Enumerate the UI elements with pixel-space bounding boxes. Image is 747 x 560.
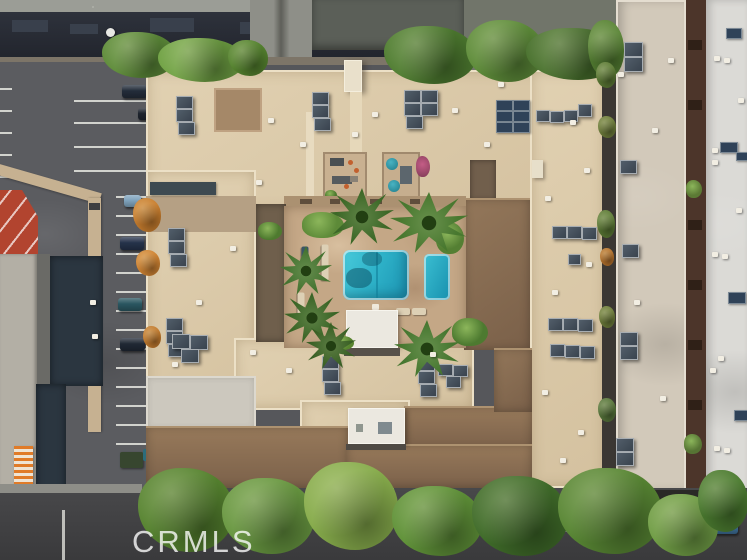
roof-vent: [542, 390, 548, 395]
roof-vent: [256, 180, 262, 185]
hvac-unit: [168, 241, 185, 254]
roof-vent: [498, 82, 504, 87]
skylight-panel: [734, 410, 747, 421]
lounge-chair: [412, 308, 426, 315]
watermark: CRMLS: [132, 524, 256, 560]
hvac-unit: [421, 90, 438, 103]
window-slit: [300, 199, 312, 204]
pool-palm-shadow: [362, 252, 382, 266]
hvac-unit: [324, 382, 341, 395]
balcony: [688, 400, 702, 410]
hvac-unit: [565, 345, 580, 358]
hvac-unit: [578, 319, 593, 332]
rooftop-unit: [70, 24, 98, 34]
roof-vent: [570, 120, 576, 125]
parking-stall-tick: [0, 132, 12, 134]
parking-stall-line: [116, 291, 148, 293]
hvac-unit: [176, 96, 193, 109]
brown-roof-deck: [214, 88, 262, 132]
roof-vent: [712, 148, 718, 153]
roof-vent: [660, 396, 666, 401]
skylight-panel: [728, 292, 746, 304]
orange-cushion: [348, 160, 353, 165]
hvac-unit: [176, 109, 193, 122]
parking-stall-line: [116, 424, 148, 426]
hvac-unit: [168, 228, 185, 241]
parking-stall-tick: [0, 110, 12, 112]
roof-vent: [230, 246, 236, 251]
hvac-unit: [446, 376, 461, 388]
shrub: [452, 318, 488, 346]
shrub: [258, 222, 282, 240]
parking-stall-line: [116, 234, 148, 236]
hvac-unit: [616, 452, 634, 466]
parking-stall-line: [74, 146, 146, 148]
parking-stall-line: [74, 100, 146, 102]
skylight-panel: [736, 152, 747, 161]
hvac-unit: [172, 334, 190, 349]
skylight-panel: [726, 28, 742, 39]
hvac-unit: [552, 226, 567, 239]
tan-transition-band: [146, 196, 256, 232]
hvac-unit: [322, 369, 339, 382]
hvac-unit: [406, 116, 423, 129]
hvac-unit: [536, 110, 550, 122]
autumn-tree: [143, 326, 161, 348]
roof-vent: [736, 208, 742, 213]
hvac-unit: [568, 254, 581, 265]
hvac-unit: [624, 42, 643, 57]
roof-vent: [172, 362, 178, 367]
parking-stall-line: [74, 122, 146, 124]
rooftop-unit: [378, 422, 392, 434]
hvac-unit: [624, 57, 643, 72]
balcony: [688, 280, 702, 290]
main-building-east-wing: [530, 70, 606, 488]
lounge-chair: [396, 308, 410, 315]
roof-vent: [652, 128, 658, 133]
roof-vent: [578, 430, 584, 435]
hvac-unit: [563, 318, 578, 331]
hvac-unit: [548, 318, 563, 331]
gray-roof-slab: [146, 376, 256, 430]
spa: [424, 254, 450, 300]
solar-panel: [513, 111, 530, 122]
bougainvillea: [416, 156, 430, 177]
roof-vent: [430, 352, 436, 357]
tree: [598, 116, 616, 138]
patio-table: [350, 176, 358, 182]
roof-vent: [714, 56, 720, 61]
car: [122, 85, 147, 98]
hvac-unit: [620, 332, 638, 346]
solar-panel: [496, 111, 513, 122]
roof-vent: [712, 160, 718, 165]
parking-stall-line: [116, 443, 148, 445]
hvac-unit: [314, 118, 331, 131]
parking-stall-tick: [0, 88, 12, 90]
roof-chimney: [344, 60, 362, 92]
roof-vent: [618, 72, 624, 77]
hvac-unit: [312, 105, 329, 118]
rooftop-unit: [150, 18, 194, 32]
hvac-unit: [420, 384, 437, 397]
solar-panel: [513, 100, 530, 111]
rooftop-unit: [356, 424, 363, 432]
hvac-unit: [620, 160, 637, 174]
autumn-tree: [133, 198, 161, 232]
patio-sofa: [330, 158, 344, 166]
rooftop-unit: [12, 20, 48, 32]
hvac-unit: [567, 226, 582, 239]
tree: [600, 248, 614, 266]
solar-panel: [513, 122, 530, 133]
teal-umbrella: [386, 158, 398, 170]
tree: [597, 210, 615, 238]
roof-vent: [586, 262, 592, 267]
balcony: [688, 100, 702, 110]
inner-corner-balcony: [470, 160, 496, 200]
dumpster: [120, 452, 143, 468]
parking-stall-line: [116, 405, 148, 407]
roof-vent: [352, 132, 358, 137]
sidewalk: [0, 484, 142, 493]
roof-vent: [710, 368, 716, 373]
roof-vent: [722, 254, 728, 259]
solar-panel: [496, 122, 513, 133]
path-mat: [89, 203, 100, 210]
hvac-unit: [312, 92, 329, 105]
roof-vent: [584, 168, 590, 173]
balcony: [688, 340, 702, 350]
roof-vent: [552, 290, 558, 295]
roof-vent: [90, 300, 96, 305]
roof-vent: [286, 368, 292, 373]
patio-couch: [400, 166, 412, 184]
roof-vent: [268, 118, 274, 123]
alley-plant: [686, 180, 702, 198]
aerial-photo: CRMLS: [0, 0, 747, 560]
hvac-unit: [578, 104, 592, 117]
hvac-unit: [170, 254, 187, 267]
roof-vent: [484, 142, 490, 147]
roof-vent: [560, 458, 566, 463]
tree: [228, 40, 268, 76]
hvac-unit: [404, 103, 421, 116]
roof-vent: [372, 112, 378, 117]
hvac-unit: [190, 335, 208, 350]
hvac-unit: [178, 122, 195, 135]
window-slit: [410, 199, 420, 204]
hvac-unit: [418, 371, 435, 384]
hvac-unit: [616, 438, 634, 452]
brown-mid-roof: [494, 348, 532, 412]
roof-vent: [668, 58, 674, 63]
roof-vent: [714, 446, 720, 451]
hvac-unit: [620, 346, 638, 360]
roof-chimney: [532, 160, 543, 178]
dark-teal-roof: [50, 256, 103, 386]
car: [120, 338, 145, 351]
parking-stall-line: [116, 386, 148, 388]
pool-palm-shadow: [346, 268, 372, 288]
hvac-unit: [421, 103, 438, 116]
roof-vent: [250, 350, 256, 355]
hvac-unit: [404, 90, 421, 103]
roof-vent: [718, 356, 724, 361]
roof-vent: [452, 108, 458, 113]
orange-cushion: [344, 184, 349, 189]
roof-shadow-band: [346, 444, 406, 450]
roof-vent: [634, 300, 640, 305]
car: [120, 237, 144, 250]
window-slit: [330, 199, 340, 204]
parking-stall-tick: [0, 154, 12, 156]
hvac-unit: [166, 318, 183, 331]
roof-vent: [738, 98, 744, 103]
solar-panel: [496, 100, 513, 111]
roof-vent: [300, 142, 306, 147]
hvac-unit: [181, 349, 199, 363]
tree: [598, 398, 616, 422]
roof-vent: [724, 448, 730, 453]
dark-lower-roof-strip: [150, 182, 216, 195]
tree: [599, 306, 615, 328]
alley-plant: [684, 434, 702, 454]
roof-vent: [196, 300, 202, 305]
balcony: [688, 220, 702, 230]
hvac-unit: [622, 244, 639, 258]
teal-umbrella: [388, 180, 400, 192]
orange-cushion: [354, 168, 359, 173]
parking-stall-line: [116, 367, 148, 369]
parking-stall-line: [74, 170, 146, 172]
roof-vent: [545, 196, 551, 201]
tree: [596, 62, 616, 88]
roof-vent: [712, 252, 718, 257]
roof-walkway: [306, 112, 314, 196]
patio-sofa: [332, 176, 352, 184]
hvac-unit: [582, 227, 597, 240]
balcony: [688, 40, 702, 50]
autumn-tree: [136, 250, 160, 276]
car: [118, 298, 142, 311]
hvac-unit: [550, 344, 565, 357]
roof-vent: [724, 58, 730, 63]
roof-vent: [92, 334, 98, 339]
hvac-unit: [550, 111, 564, 123]
hvac-unit: [580, 346, 595, 359]
lane-line: [62, 510, 65, 560]
